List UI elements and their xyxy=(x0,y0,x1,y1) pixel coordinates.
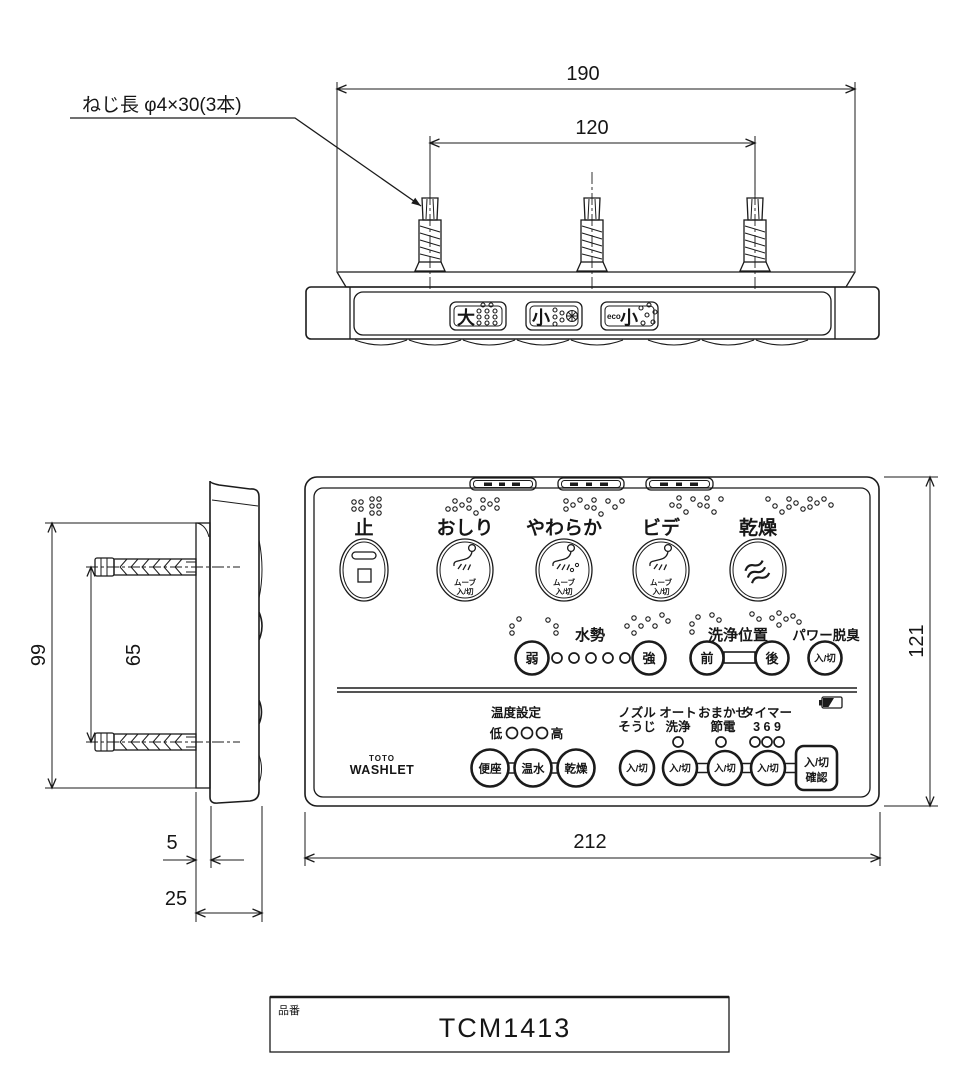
button-link-bar xyxy=(697,764,708,773)
weak-button: 弱 xyxy=(516,642,549,675)
side-view: 99 65 xyxy=(28,481,262,922)
strong-button: 強 xyxy=(633,642,666,675)
leader-line xyxy=(70,118,421,206)
svg-text:入/切: 入/切 xyxy=(455,586,474,596)
svg-text:99: 99 xyxy=(28,644,50,666)
position-front-button: 前 xyxy=(691,642,724,675)
dim-body-depth: 25 xyxy=(165,806,262,922)
temp-indicator-dots xyxy=(507,728,548,739)
svg-text:ムーブ: ムーブ xyxy=(454,577,477,587)
braille-dots xyxy=(352,496,833,516)
temp-low-label: 低 xyxy=(489,726,503,741)
part-number-label: 品番 xyxy=(278,1004,300,1017)
wash-position-label: 洗浄位置 xyxy=(708,626,768,644)
top-view: 190 120 xyxy=(306,63,879,345)
svg-text:便座: 便座 xyxy=(479,762,502,776)
soft-wash-button: ムーブ 入/切 xyxy=(536,539,592,601)
timer-label: タイマー xyxy=(742,705,792,720)
warm-air-icon xyxy=(743,559,770,585)
svg-text:入/切: 入/切 xyxy=(651,586,670,596)
dim-body-width: 212 xyxy=(305,812,880,866)
scallop-edge xyxy=(355,340,808,345)
dim-plate-height: 99 xyxy=(28,523,197,788)
svg-text:120: 120 xyxy=(575,117,608,139)
svg-text:強: 強 xyxy=(642,651,655,666)
position-back-button: 後 xyxy=(756,642,789,675)
energy-saver-button: 入/切 xyxy=(708,751,742,785)
technical-drawing-page: ねじ長 φ4×30(3本) 190 120 xyxy=(0,0,966,1087)
flush-button-small: 小 xyxy=(526,302,582,330)
flower-glyph xyxy=(567,311,578,322)
panel-divider xyxy=(337,688,857,692)
mounting-screw-side xyxy=(86,733,240,751)
dim-screw-pitch-v: 65 xyxy=(91,567,145,742)
temp-high-label: 高 xyxy=(551,726,564,741)
svg-text:入/切: 入/切 xyxy=(554,586,573,596)
rear-wash-button: ムーブ 入/切 xyxy=(437,539,493,601)
svg-text:確認: 確認 xyxy=(806,770,828,784)
svg-text:TOTO: TOTO xyxy=(369,754,395,763)
remote-body-top xyxy=(306,272,879,345)
temp-setting-label: 温度設定 xyxy=(491,705,542,720)
dry-temp-button: 乾燥 xyxy=(558,750,595,787)
part-number-value: TCM1413 xyxy=(439,1013,572,1043)
svg-text:65: 65 xyxy=(123,644,145,666)
button-link-bar xyxy=(742,764,751,773)
bidet-button: ムーブ 入/切 xyxy=(633,539,689,601)
timer-button: 入/切 xyxy=(751,751,785,785)
auto-flush-label: オート xyxy=(659,706,697,720)
dim-body-height: 121 xyxy=(884,477,938,806)
svg-text:5: 5 xyxy=(166,832,177,854)
bidet-label: ビデ xyxy=(642,516,681,539)
svg-text:25: 25 xyxy=(165,888,187,910)
seated-person-icon xyxy=(553,545,574,570)
soft-wash-label: やわらか xyxy=(526,517,602,539)
button-link-bar xyxy=(724,652,755,663)
svg-text:入/切: 入/切 xyxy=(804,756,829,769)
dry-button xyxy=(730,539,786,601)
svg-text:大: 大 xyxy=(457,307,475,328)
stop-button xyxy=(340,539,388,601)
pressure-indicator-dots xyxy=(552,653,630,663)
svg-text:入/切: 入/切 xyxy=(713,764,736,775)
svg-text:入/切: 入/切 xyxy=(813,654,836,665)
dim-screw-pitch-h: 120 xyxy=(430,117,755,195)
timer-values: 3 6 9 xyxy=(753,720,781,734)
svg-text:121: 121 xyxy=(906,624,928,657)
deodorizer-button: 入/切 xyxy=(809,642,842,675)
seated-person-icon xyxy=(650,545,671,570)
flush-button-eco: eco 小 xyxy=(601,302,658,330)
screw-note: ねじ長 φ4×30(3本) xyxy=(70,94,421,206)
water-temp-button: 温水 xyxy=(515,750,552,787)
status-indicator-dots xyxy=(673,737,784,747)
svg-text:ムーブ: ムーブ xyxy=(650,577,673,587)
auto-flush-button: 入/切 xyxy=(663,751,697,785)
seat-temp-button: 便座 xyxy=(472,750,509,787)
flush-button-big: 大 xyxy=(450,302,506,330)
svg-text:弱: 弱 xyxy=(525,651,538,666)
svg-text:入/切: 入/切 xyxy=(756,764,779,775)
nozzle-clean-label: ノズル xyxy=(618,705,656,720)
title-block: 品番 TCM1413 xyxy=(270,997,729,1052)
svg-text:乾燥: 乾燥 xyxy=(565,762,588,776)
svg-text:小: 小 xyxy=(620,308,638,328)
auto-flush-label2: 洗浄 xyxy=(665,719,691,734)
water-pressure-label: 水勢 xyxy=(575,626,605,644)
nozzle-clean-label2: そうじ xyxy=(618,720,656,734)
toto-washlet-logo: TOTO WASHLET xyxy=(350,754,415,777)
svg-text:212: 212 xyxy=(573,831,606,853)
dry-label: 乾燥 xyxy=(739,516,778,539)
svg-text:後: 後 xyxy=(765,651,779,666)
front-view: 止 おしり やわらか ビデ 乾燥 ムーブ 入/切 ムーブ 入/切 xyxy=(305,477,879,806)
svg-text:小: 小 xyxy=(532,308,550,328)
stop-square-glyph xyxy=(358,569,371,582)
svg-text:前: 前 xyxy=(700,651,713,666)
stop-label: 止 xyxy=(354,517,373,539)
remote-body-side xyxy=(196,481,262,803)
dim-overall-width: 190 xyxy=(337,63,855,271)
svg-text:入/切: 入/切 xyxy=(625,764,648,775)
svg-text:ムーブ: ムーブ xyxy=(553,577,576,587)
stop-bar-glyph xyxy=(352,552,376,559)
button-link-bar xyxy=(785,764,796,773)
svg-text:WASHLET: WASHLET xyxy=(350,763,415,777)
energy-saver-label: おまかせ xyxy=(698,706,748,720)
svg-text:温水: 温水 xyxy=(522,762,545,776)
rear-wash-label: おしり xyxy=(436,517,493,539)
energy-saver-label2: 節電 xyxy=(710,719,736,734)
onoff-confirm-button: 入/切 確認 xyxy=(796,746,837,790)
screw-note-label: ねじ長 φ4×30(3本) xyxy=(82,94,242,116)
nozzle-clean-button: 入/切 xyxy=(620,751,654,785)
seated-person-icon xyxy=(454,545,475,570)
svg-text:190: 190 xyxy=(566,63,599,85)
mounting-screw-side xyxy=(86,558,240,576)
braille-dots xyxy=(553,308,564,326)
battery-icon xyxy=(819,697,842,708)
svg-text:入/切: 入/切 xyxy=(668,764,691,775)
svg-text:eco: eco xyxy=(607,312,621,321)
